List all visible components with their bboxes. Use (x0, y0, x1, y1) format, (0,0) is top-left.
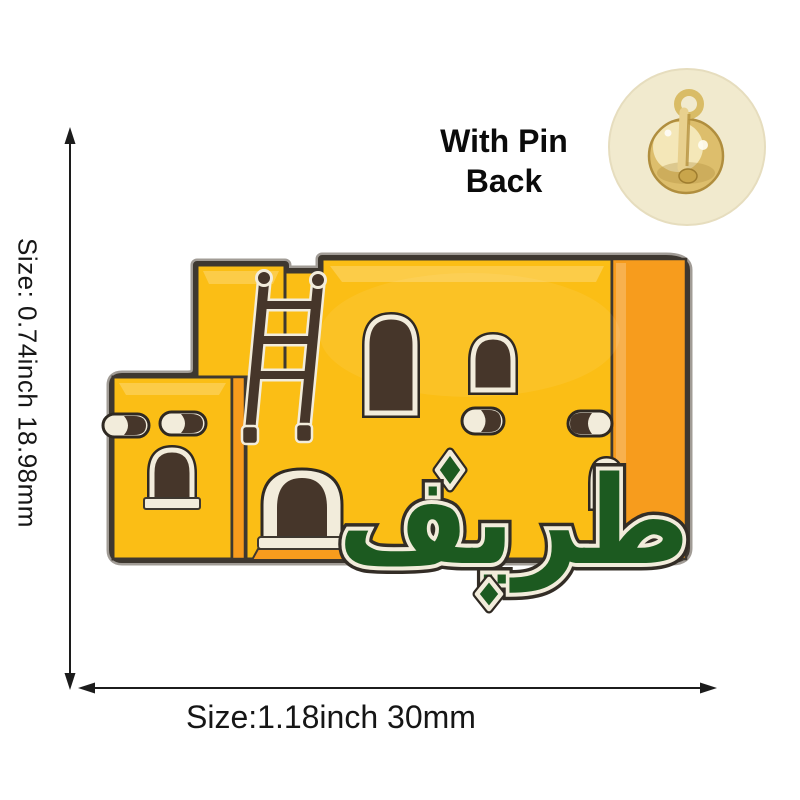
ladder-foot (296, 424, 312, 442)
sparkle (665, 130, 672, 137)
oval-window-center (462, 408, 504, 434)
oval-window-right (568, 411, 612, 436)
left-arch-window (144, 450, 200, 509)
orange-divider-strip (232, 377, 245, 559)
arabic-calligraphy: طريف (338, 450, 690, 609)
ladder-top-knob (311, 273, 326, 288)
ladder-foot (242, 426, 258, 444)
needle-tip (679, 169, 697, 183)
left-oval-window-1 (103, 414, 149, 437)
sparkle (698, 140, 708, 150)
arrow-left-icon (78, 683, 95, 694)
scene-graphic: طريف (0, 0, 800, 800)
pinback-inset (609, 69, 765, 225)
vertical-size-label: Size: 0.74inch 18.98mm (12, 238, 43, 528)
arrow-up-icon (65, 127, 76, 144)
arrow-down-icon (65, 673, 76, 690)
product-image: طريف Size: 0.74inch 18.98 (0, 0, 800, 800)
horizontal-size-label: Size:1.18inch 30mm (186, 699, 476, 736)
large-arch-window (367, 317, 415, 413)
door-sill (258, 537, 350, 549)
left-bevel-highlight (119, 383, 226, 395)
ladder-top-knob (257, 271, 272, 286)
enamel-pin: طريف (103, 259, 690, 609)
arrow-right-icon (700, 683, 717, 694)
left-oval-window-2 (160, 412, 206, 435)
with-pin-back-label: With Pin Back (413, 121, 595, 201)
window-sill (144, 498, 200, 509)
needle-shaft-shadow (687, 114, 689, 166)
needle-shaft (682, 112, 684, 168)
small-arch-window (473, 337, 513, 390)
